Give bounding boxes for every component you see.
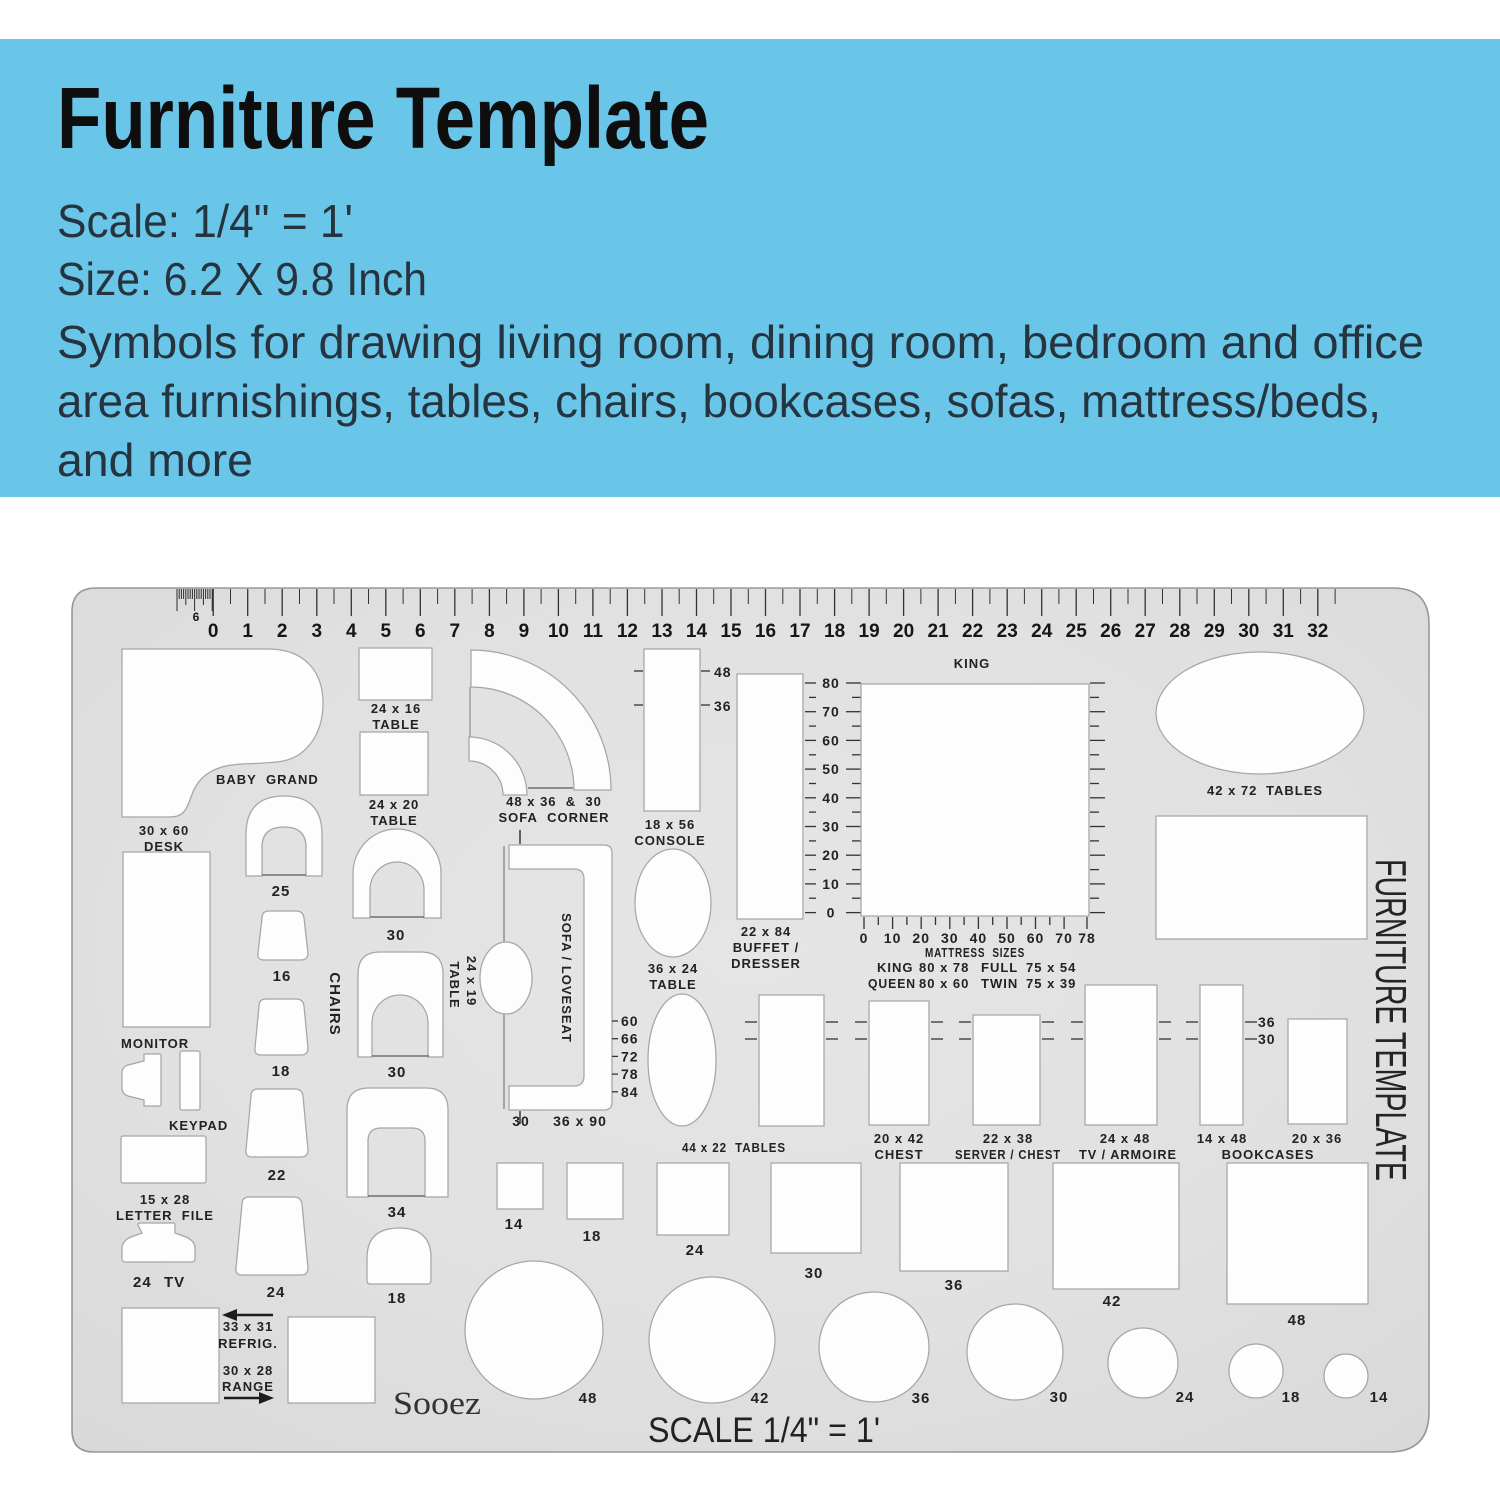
svg-text:18: 18 [1282, 1389, 1301, 1406]
svg-text:30: 30 [805, 1265, 824, 1282]
svg-text:TABLE: TABLE [447, 961, 462, 1008]
svg-text:30: 30 [388, 1064, 407, 1081]
svg-text:SOFA / LOVESEAT: SOFA / LOVESEAT [559, 913, 574, 1043]
svg-text:70: 70 [1055, 930, 1073, 946]
svg-text:42 x 72: 42 x 72 [1207, 783, 1257, 798]
svg-text:6: 6 [415, 621, 426, 642]
svg-text:30: 30 [512, 1113, 530, 1129]
svg-text:16: 16 [755, 621, 776, 642]
svg-text:25: 25 [1066, 621, 1088, 642]
svg-text:24 x 48: 24 x 48 [1100, 1131, 1150, 1146]
svg-text:TABLES: TABLES [1266, 783, 1323, 798]
svg-text:KING: KING [954, 656, 991, 671]
svg-text:60: 60 [1027, 930, 1045, 946]
svg-text:30: 30 [1050, 1389, 1069, 1406]
svg-text:36: 36 [945, 1277, 964, 1294]
svg-text:36: 36 [714, 698, 732, 714]
svg-text:TABLE: TABLE [372, 717, 419, 732]
svg-text:CHEST: CHEST [874, 1147, 923, 1162]
svg-text:48: 48 [579, 1390, 598, 1407]
svg-text:CHAIRS: CHAIRS [326, 972, 343, 1036]
svg-text:28: 28 [1169, 621, 1190, 642]
svg-text:20: 20 [912, 930, 930, 946]
svg-text:DRESSER: DRESSER [731, 956, 801, 971]
svg-text:40: 40 [970, 930, 988, 946]
svg-text:Symbols for drawing living roo: Symbols for drawing living room, dining … [57, 316, 1424, 368]
svg-text:60: 60 [822, 732, 840, 748]
svg-text:SERVER / CHEST: SERVER / CHEST [955, 1147, 1061, 1162]
svg-text:RANGE: RANGE [222, 1379, 274, 1394]
svg-text:CONSOLE: CONSOLE [634, 833, 705, 848]
svg-text:29: 29 [1204, 621, 1225, 642]
svg-text:SCALE 1/4" = 1': SCALE 1/4" = 1' [648, 1411, 880, 1450]
svg-text:Scale: 1/4" = 1': Scale: 1/4" = 1' [57, 195, 353, 247]
svg-text:80: 80 [822, 675, 840, 691]
svg-text:12: 12 [617, 621, 638, 642]
svg-text:24 x 16: 24 x 16 [371, 701, 421, 716]
svg-text:2: 2 [277, 621, 288, 642]
svg-text:19: 19 [859, 621, 880, 642]
svg-text:9: 9 [519, 621, 530, 642]
svg-text:REFRIG.: REFRIG. [218, 1336, 278, 1351]
svg-text:30 x 60: 30 x 60 [139, 823, 189, 838]
svg-text:27: 27 [1135, 621, 1156, 642]
svg-text:30: 30 [822, 819, 840, 835]
svg-text:BOOKCASES: BOOKCASES [1222, 1147, 1315, 1162]
svg-text:72: 72 [621, 1048, 639, 1064]
svg-text:30: 30 [1238, 621, 1259, 642]
svg-text:24 x 19: 24 x 19 [464, 956, 479, 1006]
svg-text:0: 0 [860, 930, 869, 946]
svg-text:QUEEN: QUEEN [868, 976, 916, 991]
svg-text:TV: TV [164, 1274, 185, 1291]
svg-text:18: 18 [583, 1228, 602, 1245]
svg-text:14: 14 [1370, 1389, 1389, 1406]
svg-text:24: 24 [1176, 1389, 1195, 1406]
svg-text:66: 66 [621, 1031, 639, 1047]
svg-text:24: 24 [267, 1284, 286, 1301]
svg-text:18 x 56: 18 x 56 [645, 817, 695, 832]
svg-text:22: 22 [962, 621, 983, 642]
svg-text:20: 20 [893, 621, 914, 642]
svg-text:50: 50 [822, 761, 840, 777]
svg-text:SOFA CORNER: SOFA CORNER [499, 810, 610, 825]
svg-text:80 x 60: 80 x 60 [919, 976, 969, 991]
svg-text:0: 0 [208, 621, 219, 642]
svg-text:MONITOR: MONITOR [121, 1036, 189, 1051]
svg-text:30: 30 [1258, 1031, 1276, 1047]
svg-text:75 x 54: 75 x 54 [1026, 960, 1076, 975]
svg-text:16: 16 [273, 968, 292, 985]
svg-text:0: 0 [827, 905, 836, 921]
svg-text:7: 7 [450, 621, 461, 642]
svg-text:TWIN: TWIN [981, 976, 1018, 991]
svg-text:24: 24 [133, 1274, 152, 1291]
svg-text:23: 23 [997, 621, 1018, 642]
svg-text:Furniture Template: Furniture Template [57, 70, 709, 167]
svg-text:80 x 78: 80 x 78 [919, 960, 969, 975]
svg-text:MATTRESS SIZES: MATTRESS SIZES [925, 945, 1025, 960]
svg-text:75 x 39: 75 x 39 [1026, 976, 1076, 991]
svg-text:Sooez: Sooez [393, 1386, 481, 1422]
svg-text:10: 10 [548, 621, 569, 642]
svg-text:TABLE: TABLE [649, 977, 696, 992]
svg-text:36 x 90: 36 x 90 [553, 1113, 607, 1129]
svg-text:17: 17 [789, 621, 810, 642]
svg-text:Size: 6.2 X 9.8 Inch: Size: 6.2 X 9.8 Inch [57, 253, 427, 305]
svg-text:10: 10 [884, 930, 902, 946]
svg-text:18: 18 [388, 1290, 407, 1307]
svg-text:15 x 28: 15 x 28 [140, 1192, 190, 1207]
svg-text:18: 18 [272, 1063, 291, 1080]
svg-text:42: 42 [1103, 1293, 1122, 1310]
svg-text:44 x 22 TABLES: 44 x 22 TABLES [682, 1140, 786, 1155]
svg-text:50: 50 [998, 930, 1016, 946]
svg-text:TABLE: TABLE [370, 813, 417, 828]
svg-text:14: 14 [505, 1216, 524, 1233]
svg-text:48 x 36 & 30: 48 x 36 & 30 [506, 794, 602, 809]
svg-text:and more: and more [57, 434, 253, 486]
svg-text:22 x 38: 22 x 38 [983, 1131, 1033, 1146]
svg-text:14: 14 [686, 621, 708, 642]
svg-text:32: 32 [1307, 621, 1328, 642]
svg-text:13: 13 [651, 621, 672, 642]
svg-text:70: 70 [822, 704, 840, 720]
svg-text:BUFFET /: BUFFET / [733, 940, 800, 955]
svg-text:20: 20 [822, 847, 840, 863]
svg-text:24 x 20: 24 x 20 [369, 797, 419, 812]
svg-text:60: 60 [621, 1013, 639, 1029]
svg-text:20 x 36: 20 x 36 [1292, 1131, 1342, 1146]
svg-text:30 x 28: 30 x 28 [223, 1363, 273, 1378]
svg-text:36 x 24: 36 x 24 [648, 961, 698, 976]
svg-text:6: 6 [193, 610, 200, 624]
svg-text:33 x 31: 33 x 31 [223, 1319, 273, 1334]
svg-text:24: 24 [686, 1242, 705, 1259]
svg-text:48: 48 [1288, 1312, 1307, 1329]
svg-text:42: 42 [751, 1390, 770, 1407]
svg-text:11: 11 [583, 621, 604, 642]
svg-text:36: 36 [1258, 1014, 1276, 1030]
svg-text:84: 84 [621, 1084, 639, 1100]
svg-text:22 x 84: 22 x 84 [741, 924, 791, 939]
svg-text:LETTER FILE: LETTER FILE [116, 1208, 214, 1223]
svg-text:10: 10 [822, 876, 840, 892]
svg-text:15: 15 [720, 621, 742, 642]
svg-text:30: 30 [941, 930, 959, 946]
svg-text:78: 78 [621, 1066, 639, 1082]
svg-text:FURNITURE TEMPLATE: FURNITURE TEMPLATE [1366, 859, 1415, 1181]
svg-text:78: 78 [1078, 930, 1096, 946]
svg-text:BABY GRAND: BABY GRAND [216, 772, 319, 787]
svg-text:25: 25 [272, 883, 291, 900]
svg-text:18: 18 [824, 621, 845, 642]
svg-text:48: 48 [714, 664, 732, 680]
svg-text:TV / ARMOIRE: TV / ARMOIRE [1079, 1147, 1177, 1162]
svg-text:area furnishings, tables, chai: area furnishings, tables, chairs, bookca… [57, 375, 1381, 427]
svg-text:4: 4 [346, 621, 357, 642]
svg-text:KEYPAD: KEYPAD [169, 1118, 228, 1133]
svg-text:36: 36 [912, 1390, 931, 1407]
svg-text:40: 40 [822, 790, 840, 806]
svg-text:FULL: FULL [981, 960, 1018, 975]
svg-text:24: 24 [1031, 621, 1053, 642]
svg-text:31: 31 [1273, 621, 1295, 642]
svg-text:34: 34 [388, 1204, 407, 1221]
svg-text:30: 30 [387, 927, 406, 944]
svg-text:21: 21 [928, 621, 950, 642]
svg-text:KING: KING [877, 960, 914, 975]
svg-text:20 x 42: 20 x 42 [874, 1131, 924, 1146]
svg-text:1: 1 [242, 621, 253, 642]
svg-text:14 x 48: 14 x 48 [1197, 1131, 1247, 1146]
svg-text:3: 3 [312, 621, 323, 642]
svg-text:26: 26 [1100, 621, 1121, 642]
svg-text:22: 22 [268, 1167, 287, 1184]
svg-text:8: 8 [484, 621, 495, 642]
svg-text:5: 5 [381, 621, 392, 642]
